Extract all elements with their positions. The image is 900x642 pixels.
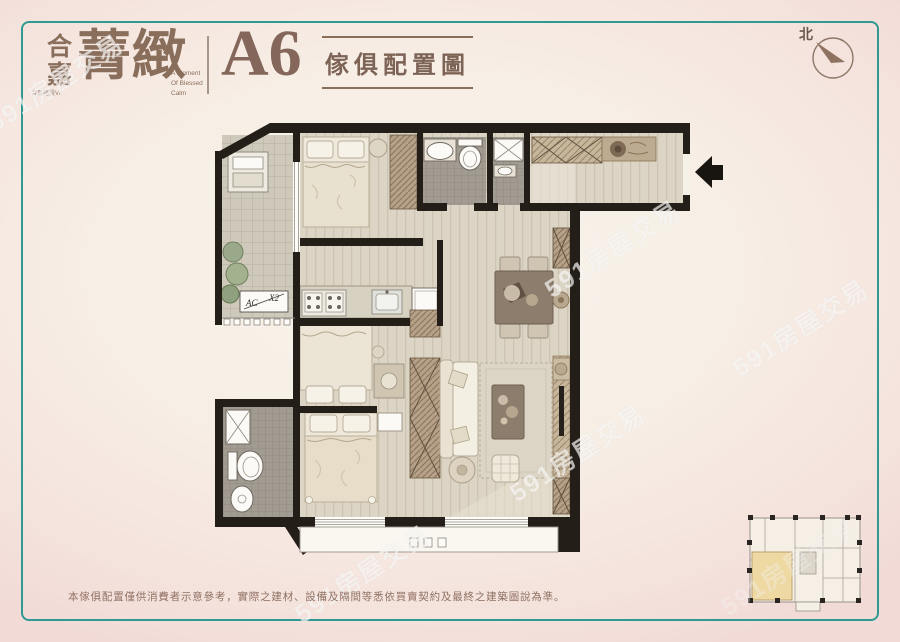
- tagline-line-2: Of Blessed: [171, 79, 203, 89]
- tagline-line-3: Calm: [171, 89, 203, 99]
- ac-label-text: AC: [245, 298, 258, 308]
- diagram-title: 傢俱配置圖: [322, 36, 473, 89]
- tagline-line-1: A Moment: [171, 69, 203, 79]
- balcony-ac-unit: [228, 152, 268, 192]
- bedroom-1-wardrobe: [390, 135, 417, 209]
- bottom-balcony: [300, 527, 558, 552]
- disclaimer-text: 本傢俱配置僅供消費者示意參考，實際之建材、設備及隔間等悉依買賣契約及最終之建築圖…: [68, 589, 565, 604]
- entrance-arrow-icon: [695, 156, 723, 188]
- key-plan-core: [800, 552, 816, 574]
- ac-label: AC X2: [240, 291, 288, 312]
- entry-door-opening: [683, 153, 690, 195]
- key-plan: [747, 515, 862, 611]
- bedroom-3-nightstand: [378, 413, 402, 431]
- key-plan-highlight-unit: [752, 552, 792, 600]
- brand-name: 合嘉: [47, 34, 75, 90]
- ac-count-text: X2: [268, 293, 279, 303]
- dining-table: [495, 271, 553, 324]
- bedroom-2-closet: [410, 310, 440, 337]
- brand-small-text: 合嘉建設VI: [31, 88, 91, 97]
- sofa: [440, 360, 478, 458]
- entry-cabinets: [532, 137, 656, 163]
- bedroom-3-bed: [305, 413, 377, 504]
- ottoman: [492, 455, 519, 482]
- header-divider: [207, 36, 209, 94]
- coffee-table: [492, 385, 524, 439]
- side-table: [449, 457, 475, 483]
- brand-tagline: A Moment Of Blessed Calm: [171, 69, 203, 98]
- bedroom-1-bed: [303, 137, 369, 227]
- tv-screen: [559, 386, 564, 436]
- floor-plan-page: { "header": { "brand_name": "合嘉", "brand…: [0, 0, 900, 642]
- bedroom-1-lamp-table: [369, 139, 387, 157]
- balcony-rail: [222, 318, 295, 325]
- hall-wardrobe: [410, 358, 440, 478]
- kitchen-counter: [300, 286, 412, 318]
- header: 合嘉 合嘉建設VI 菁緻 A Moment Of Blessed Calm A6…: [0, 0, 900, 120]
- unit-code: A6: [221, 18, 302, 91]
